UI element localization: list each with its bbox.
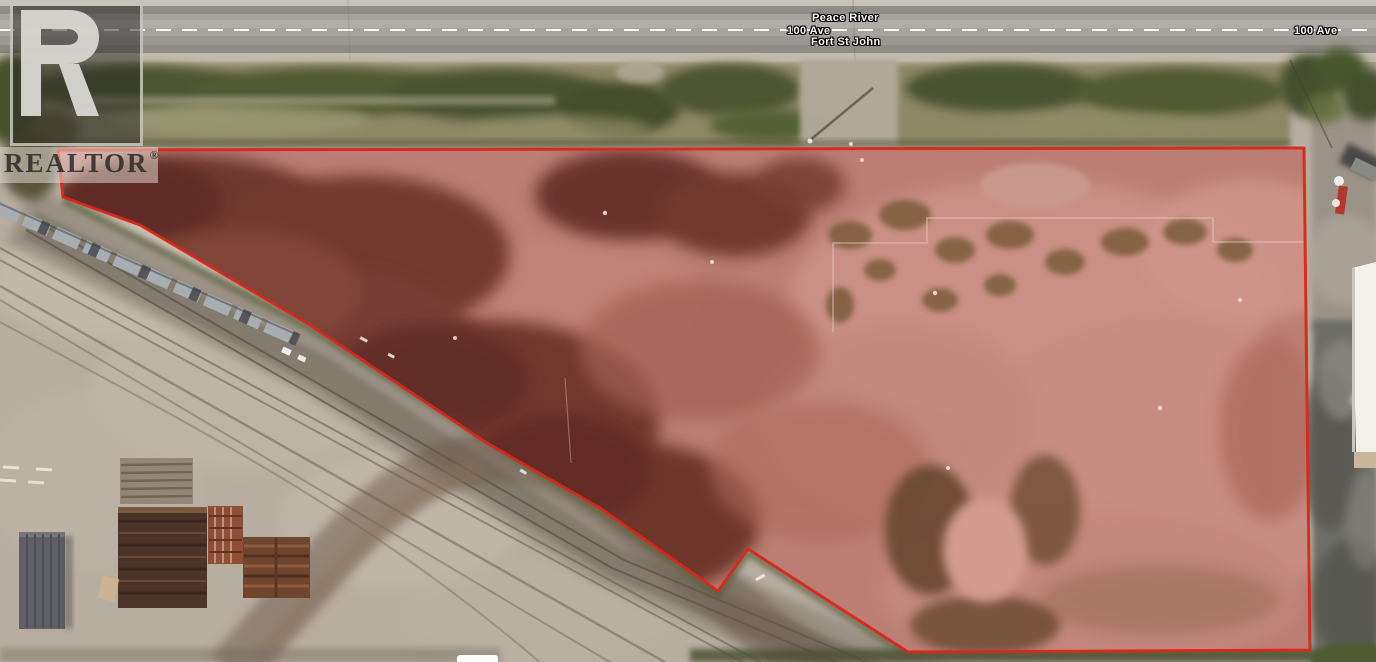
registered-trademark-symbol: ® — [150, 148, 159, 163]
realtor-logo-block — [10, 3, 143, 146]
street-label-fort-st-john: Fort St John — [811, 37, 881, 48]
material-stack-dark — [118, 507, 207, 608]
street-label-100-ave-right: 100 Ave — [1294, 26, 1338, 37]
road-100-ave — [0, 0, 1376, 62]
beige-band — [1354, 452, 1376, 468]
map-image — [0, 0, 1376, 662]
truck-cab — [1334, 176, 1344, 186]
bottom-shadow-left — [0, 648, 500, 662]
roadside-vegetation — [26, 60, 1290, 148]
white-building-roof — [1352, 262, 1376, 452]
storage-building — [19, 532, 72, 629]
aerial-listing-photo[interactable]: Peace River 100 Ave Fort St John 100 Ave… — [0, 0, 1376, 662]
realtor-r-icon — [13, 6, 103, 122]
material-stack-light — [120, 458, 193, 504]
realtor-wordmark: REALTOR — [4, 150, 149, 177]
bottom-edge-tab — [457, 655, 498, 662]
realtor-wordmark-band: REALTOR ® — [0, 147, 158, 183]
street-label-peace-river: Peace River — [812, 13, 879, 24]
building-edge — [1352, 268, 1355, 452]
pipe-stack — [243, 537, 310, 598]
realtor-watermark: REALTOR ® — [0, 0, 162, 190]
rusty-rack — [208, 506, 243, 564]
